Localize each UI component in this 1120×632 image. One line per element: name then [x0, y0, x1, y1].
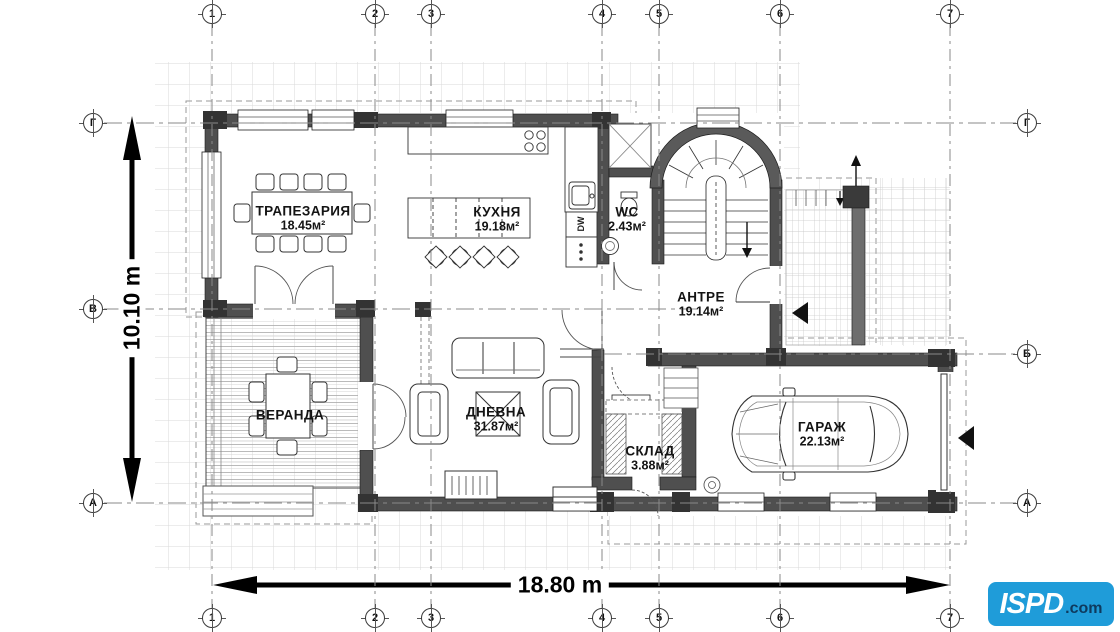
room-name: ВЕРАНДА [256, 409, 324, 424]
room-area: 3.88м² [625, 460, 674, 474]
grid-bubble-В: В [83, 299, 103, 319]
grid-bubble-label: Г [83, 113, 103, 133]
room-area: 19.14м² [677, 306, 725, 320]
grid-bubble-label: 2 [365, 608, 385, 628]
fireplace [445, 471, 497, 499]
room-label-1: ТРАПЕЗАРИЯ18.45м² [256, 205, 351, 234]
grid-bubble-label: Г [1017, 113, 1037, 133]
garage-entrance-arrow [958, 426, 974, 450]
dishwasher-label: DW [568, 211, 594, 237]
grid-bubble-label: 6 [770, 4, 790, 24]
room-label-7: СКЛАД3.88м² [625, 445, 674, 474]
room-label-4: АНТРЕ19.14м² [677, 291, 725, 320]
room-area: 19.18м² [473, 221, 520, 235]
room-area: 22.13м² [798, 436, 846, 450]
grid-bubble-Б: Б [1017, 344, 1037, 364]
grid-bubble-2: 2 [365, 608, 385, 628]
room-name: ГАРАЖ [798, 421, 846, 436]
grid-bubble-1: 1 [202, 4, 222, 24]
logo-ispd[interactable]: ISPD .com [988, 582, 1114, 626]
garage-door [936, 372, 955, 492]
room-label-6: ДНЕВНА31.87м² [466, 406, 526, 435]
grid-bubble-label: А [1017, 493, 1037, 513]
grid-bubble-label: 5 [649, 4, 669, 24]
grid-bubble-7: 7 [940, 4, 960, 24]
grid-bubble-6: 6 [770, 608, 790, 628]
logo-text-suffix: .com [1065, 601, 1102, 617]
grid-bubble-label: 2 [365, 4, 385, 24]
grid-bubble-Г: Г [1017, 113, 1037, 133]
grid-bubble-3: 3 [421, 4, 441, 24]
room-area: 2.43м² [608, 221, 646, 235]
grid-bubble-label: 1 [202, 608, 222, 628]
grid-bubble-7: 7 [940, 608, 960, 628]
grid-bubble-label: А [83, 493, 103, 513]
grid-bubble-2: 2 [365, 4, 385, 24]
floor-plan-canvas: 18.80 m 10.10 m DW ISPD .com 11223344556… [0, 0, 1120, 632]
grid-bubble-label: 3 [421, 608, 441, 628]
grid-bubble-4: 4 [592, 4, 612, 24]
grid-bubble-label: 6 [770, 608, 790, 628]
grid-bubble-label: 3 [421, 4, 441, 24]
room-name: КУХНЯ [473, 206, 520, 221]
room-name: WC [608, 206, 646, 221]
room-area: 31.87м² [466, 421, 526, 435]
grid-bubble-3: 3 [421, 608, 441, 628]
grid-bubble-5: 5 [649, 4, 669, 24]
room-label-2: КУХНЯ19.18м² [473, 206, 520, 235]
grid-bubble-label: 7 [940, 4, 960, 24]
grid-bubble-label: 1 [202, 4, 222, 24]
room-name: ДНЕВНА [466, 406, 526, 421]
room-area: 18.45м² [256, 220, 351, 234]
grid-bubble-label: Б [1017, 344, 1037, 364]
dimension-label-horizontal: 18.80 m [511, 572, 609, 599]
grid-bubble-А: А [83, 493, 103, 513]
grid-bubble-6: 6 [770, 4, 790, 24]
room-name: СКЛАД [625, 445, 674, 460]
floor-plan-drawing [0, 0, 1120, 632]
grid-bubble-1: 1 [202, 608, 222, 628]
room-label-5: ВЕРАНДА [256, 409, 324, 424]
grid-bubble-label: В [83, 299, 103, 319]
grid-bubble-Г: Г [83, 113, 103, 133]
grid-bubble-5: 5 [649, 608, 669, 628]
grid-bubble-4: 4 [592, 608, 612, 628]
room-label-3: WC2.43м² [608, 206, 646, 235]
room-label-8: ГАРАЖ22.13м² [798, 421, 846, 450]
grid-bubble-label: 5 [649, 608, 669, 628]
grid-bubble-label: 4 [592, 608, 612, 628]
dimension-label-vertical: 10.10 m [119, 259, 146, 357]
room-name: АНТРЕ [677, 291, 725, 306]
grid-bubble-label: 4 [592, 4, 612, 24]
room-name: ТРАПЕЗАРИЯ [256, 205, 351, 220]
grid-bubble-label: 7 [940, 608, 960, 628]
logo-text-main: ISPD [999, 590, 1063, 619]
grid-bubble-А: А [1017, 493, 1037, 513]
